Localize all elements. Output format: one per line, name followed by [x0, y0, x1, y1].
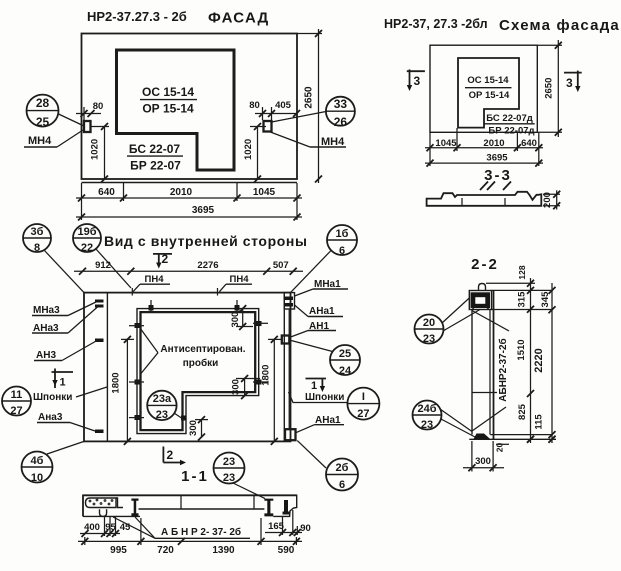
svg-text:2б: 2б	[336, 462, 349, 474]
svg-text:19б: 19б	[77, 226, 96, 238]
svg-text:1020: 1020	[90, 139, 101, 160]
svg-text:ОС 15-14: ОС 15-14	[467, 75, 509, 86]
svg-text:3695: 3695	[486, 153, 508, 164]
svg-text:315: 315	[517, 291, 528, 308]
svg-text:БР 22-07: БР 22-07	[130, 159, 181, 173]
svg-text:А Б Н Р 2- 37- 2б: А Б Н Р 2- 37- 2б	[161, 526, 241, 538]
svg-text:300: 300	[188, 420, 199, 436]
svg-text:I: I	[362, 391, 365, 403]
svg-text:1800: 1800	[261, 365, 272, 386]
svg-text:ПН4: ПН4	[230, 274, 250, 285]
svg-text:6: 6	[339, 245, 345, 257]
svg-text:БР 22-07д: БР 22-07д	[488, 126, 534, 137]
svg-text:3б: 3б	[31, 226, 44, 238]
svg-text:ОР 15-14: ОР 15-14	[469, 90, 510, 101]
svg-text:3695: 3695	[192, 205, 215, 216]
svg-text:25: 25	[36, 115, 50, 129]
svg-text:МН4: МН4	[28, 135, 52, 147]
svg-text:115: 115	[534, 414, 545, 430]
svg-text:507: 507	[273, 260, 289, 271]
svg-text:405: 405	[275, 100, 292, 111]
svg-text:1800: 1800	[111, 372, 122, 393]
svg-text:МНа3: МНа3	[33, 305, 60, 316]
svg-text:Схема фасада: Схема фасада	[499, 17, 620, 34]
svg-text:23: 23	[223, 472, 235, 484]
svg-text:23: 23	[156, 409, 168, 421]
svg-text:1390: 1390	[212, 545, 235, 556]
svg-text:912: 912	[95, 260, 111, 271]
svg-text:300: 300	[475, 456, 491, 467]
svg-text:АНа1: АНа1	[309, 306, 335, 317]
svg-text:1045: 1045	[253, 187, 276, 198]
svg-text:ФАСАД: ФАСАД	[208, 10, 269, 27]
svg-text:Ана3: Ана3	[38, 412, 63, 423]
svg-text:2276: 2276	[197, 260, 218, 271]
svg-text:НР2-37, 27.3 -2бл: НР2-37, 27.3 -2бл	[384, 17, 488, 31]
svg-text:пробки: пробки	[183, 357, 219, 369]
svg-text:200: 200	[542, 192, 553, 208]
svg-text:27: 27	[10, 405, 22, 417]
svg-text:НР2-37.27.3 - 2б: НР2-37.27.3 - 2б	[87, 9, 187, 24]
svg-text:995: 995	[110, 545, 127, 556]
svg-text:128: 128	[517, 265, 527, 279]
svg-text:28: 28	[36, 96, 50, 110]
svg-text:2010: 2010	[170, 187, 193, 198]
svg-text:26: 26	[334, 115, 348, 129]
svg-text:23: 23	[421, 419, 433, 431]
svg-text:80: 80	[249, 100, 260, 111]
svg-text:2650: 2650	[304, 86, 315, 109]
svg-text:1-1: 1-1	[181, 468, 209, 485]
svg-text:3: 3	[414, 74, 421, 88]
svg-text:Шпонки: Шпонки	[305, 392, 344, 403]
svg-text:825: 825	[517, 403, 528, 420]
svg-text:23: 23	[223, 456, 235, 468]
svg-text:10: 10	[31, 472, 43, 484]
svg-text:1: 1	[311, 380, 317, 392]
svg-text:Вид с внутренней стороны: Вид с внутренней стороны	[104, 233, 308, 249]
svg-text:4б: 4б	[31, 455, 44, 467]
svg-text:2650: 2650	[544, 78, 555, 99]
svg-text:ПН4: ПН4	[145, 274, 165, 285]
svg-text:МН4: МН4	[321, 136, 345, 148]
svg-text:ОС 15-14: ОС 15-14	[142, 85, 194, 99]
svg-text:3-3: 3-3	[484, 167, 512, 184]
svg-text:БС 22-07д: БС 22-07д	[486, 113, 533, 124]
svg-text:1: 1	[60, 377, 66, 389]
svg-text:АБНР2-37-2б: АБНР2-37-2б	[497, 338, 509, 401]
svg-text:640: 640	[98, 187, 115, 198]
svg-text:1510: 1510	[516, 339, 527, 360]
svg-text:640: 640	[521, 138, 537, 149]
svg-text:22: 22	[81, 242, 93, 254]
svg-text:8: 8	[34, 242, 40, 254]
svg-text:23: 23	[423, 333, 435, 345]
svg-text:2220: 2220	[533, 348, 545, 372]
svg-text:2-2: 2-2	[471, 256, 499, 273]
svg-text:300: 300	[230, 312, 241, 328]
svg-text:БС 22-07: БС 22-07	[129, 142, 180, 156]
svg-text:6: 6	[339, 479, 345, 491]
svg-text:23а: 23а	[153, 393, 172, 405]
svg-text:590: 590	[278, 545, 295, 556]
svg-text:Шпонки: Шпонки	[33, 392, 72, 403]
svg-text:1045: 1045	[435, 138, 457, 149]
svg-text:ОР 15-14: ОР 15-14	[142, 102, 194, 116]
svg-text:20: 20	[495, 443, 505, 453]
svg-text:33: 33	[334, 97, 348, 111]
svg-text:11: 11	[11, 389, 23, 401]
svg-text:165: 165	[268, 521, 285, 532]
svg-text:300: 300	[231, 379, 242, 395]
svg-text:27: 27	[357, 408, 369, 420]
svg-text:720: 720	[157, 545, 174, 556]
svg-text:20: 20	[423, 317, 435, 329]
svg-text:1б: 1б	[336, 228, 349, 240]
svg-text:Антисептирован.: Антисептирован.	[160, 344, 245, 355]
svg-text:345: 345	[540, 291, 551, 308]
svg-text:25: 25	[339, 348, 351, 360]
svg-text:АН3: АН3	[36, 350, 56, 361]
svg-text:1020: 1020	[243, 139, 254, 160]
svg-text:400: 400	[84, 522, 100, 533]
svg-text:2010: 2010	[483, 138, 504, 149]
svg-text:95: 95	[105, 522, 116, 533]
svg-text:90: 90	[300, 523, 311, 534]
svg-text:3: 3	[566, 76, 573, 90]
svg-text:24б: 24б	[417, 403, 436, 415]
svg-text:24: 24	[339, 365, 352, 377]
svg-text:2: 2	[162, 252, 169, 266]
svg-text:2: 2	[167, 448, 174, 462]
